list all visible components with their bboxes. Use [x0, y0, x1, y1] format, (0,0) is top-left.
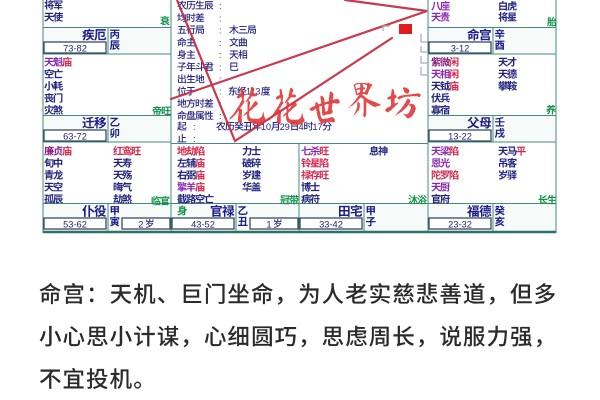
svg-text::: : — [219, 62, 222, 72]
svg-text::: : — [219, 38, 222, 48]
svg-text:1: 1 — [266, 219, 271, 229]
svg-text:29: 29 — [280, 122, 290, 132]
svg-text::: : — [219, 1, 222, 11]
svg-text:53-62: 53-62 — [63, 219, 87, 229]
svg-text:2: 2 — [138, 219, 143, 229]
svg-text:3-12: 3-12 — [451, 43, 470, 53]
svg-text:13-22: 13-22 — [448, 131, 472, 141]
svg-text:63-72: 63-72 — [63, 131, 87, 141]
svg-text:17: 17 — [313, 122, 323, 132]
svg-text::: : — [193, 134, 196, 144]
svg-text::: : — [219, 111, 222, 121]
svg-text::: : — [219, 87, 222, 97]
svg-text::: : — [219, 25, 222, 35]
svg-text:43-52: 43-52 — [191, 219, 215, 229]
svg-text::: : — [219, 50, 222, 60]
svg-text:73-82: 73-82 — [63, 43, 87, 53]
svg-text::: : — [193, 122, 196, 132]
svg-text:23-32: 23-32 — [448, 219, 472, 229]
svg-text::: : — [219, 13, 222, 23]
svg-text:33-42: 33-42 — [319, 219, 343, 229]
